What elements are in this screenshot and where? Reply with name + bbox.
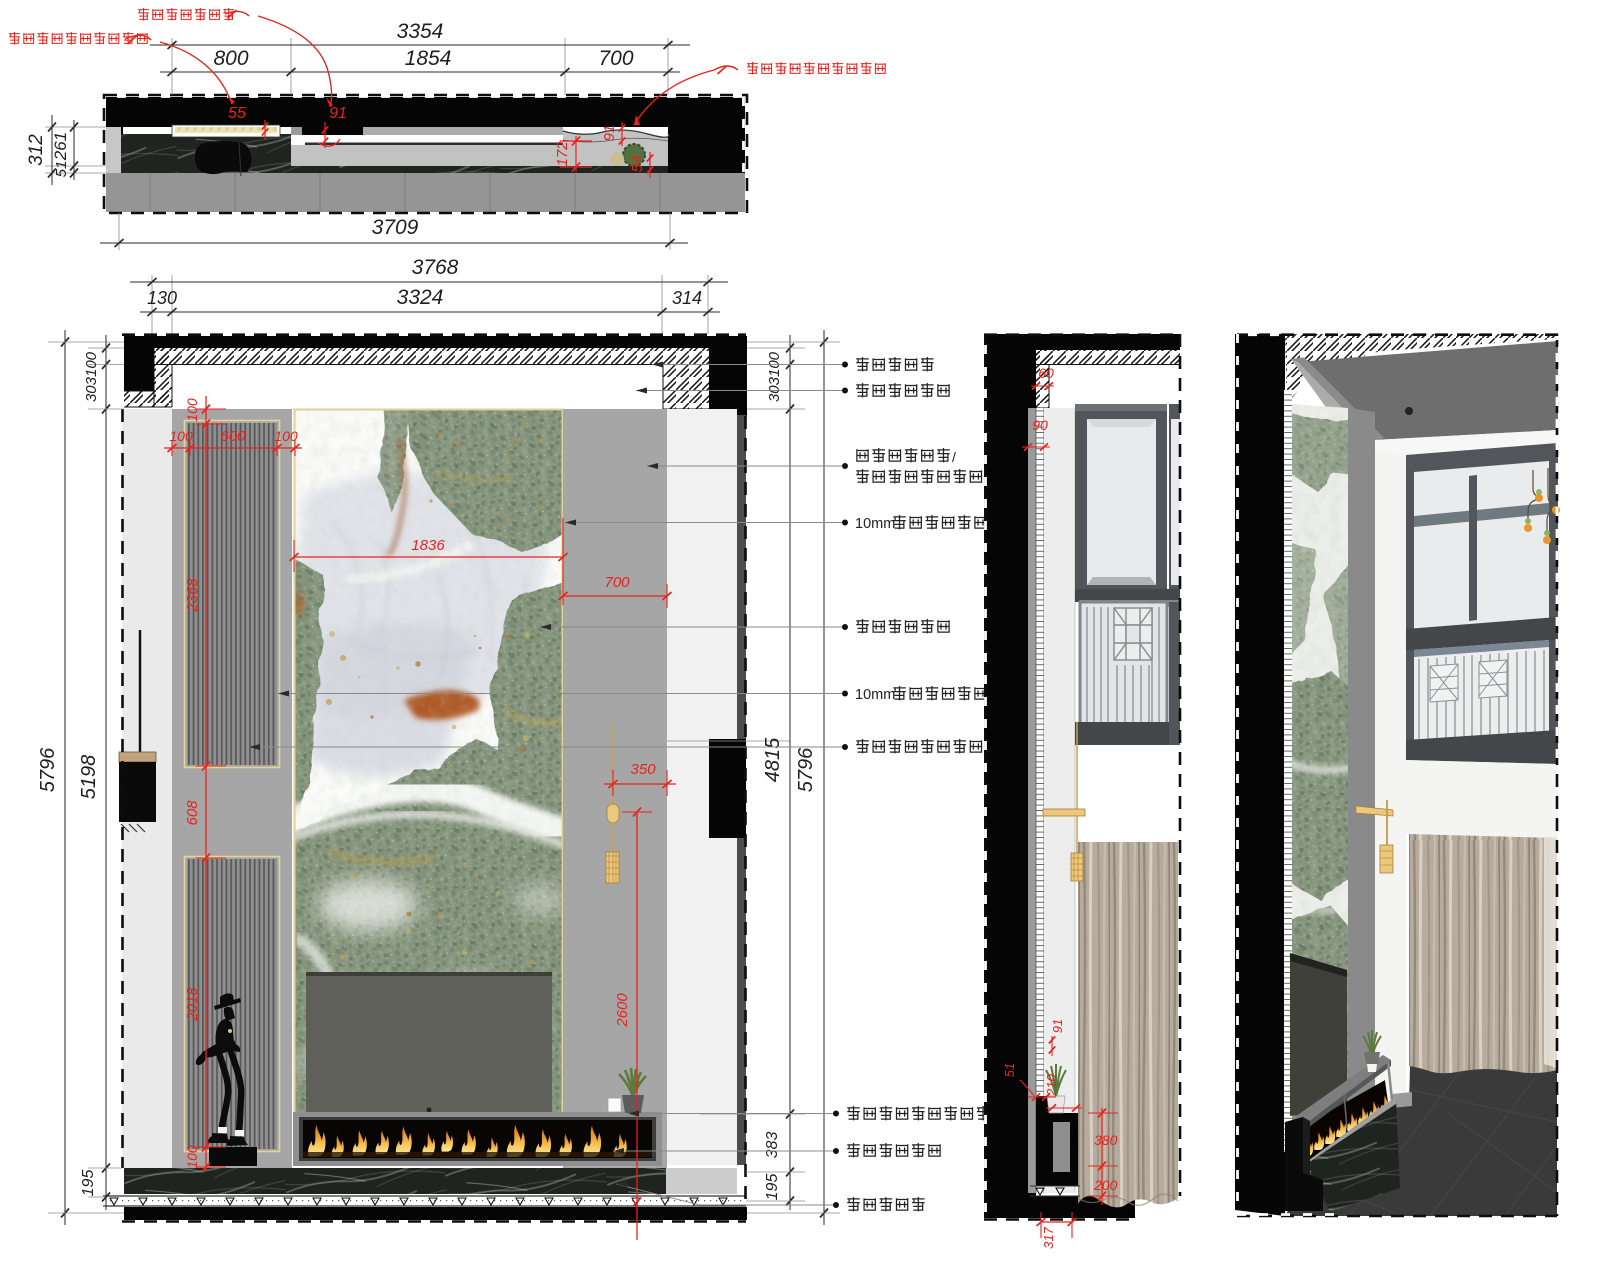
svg-text:5796: 5796 <box>37 747 59 792</box>
svg-text:10mm: 10mm <box>855 687 895 703</box>
svg-text:51: 51 <box>53 161 70 178</box>
svg-text:2018: 2018 <box>184 987 201 1022</box>
svg-text:383: 383 <box>764 1132 781 1159</box>
svg-text:608: 608 <box>184 800 201 826</box>
svg-text:3324: 3324 <box>397 286 444 309</box>
svg-text:172: 172 <box>554 141 571 167</box>
svg-text:2600: 2600 <box>614 993 631 1028</box>
svg-text:350: 350 <box>630 761 656 778</box>
svg-text:1836: 1836 <box>411 537 445 554</box>
svg-text:100: 100 <box>184 398 200 422</box>
svg-text:261: 261 <box>51 132 70 161</box>
svg-text:5198: 5198 <box>78 755 100 800</box>
svg-text:303100: 303100 <box>766 351 783 402</box>
svg-text:700: 700 <box>604 574 630 591</box>
svg-text:800: 800 <box>213 47 248 70</box>
svg-text:312: 312 <box>26 134 47 166</box>
svg-text:2368: 2368 <box>184 578 201 613</box>
svg-text:1854: 1854 <box>405 47 452 70</box>
svg-text:700: 700 <box>598 47 633 70</box>
svg-text:600: 600 <box>220 428 246 445</box>
svg-text:195: 195 <box>764 1174 781 1201</box>
svg-text:314: 314 <box>672 288 702 308</box>
svg-text:91: 91 <box>329 105 347 122</box>
svg-text:51: 51 <box>1002 1063 1017 1077</box>
svg-text:3709: 3709 <box>372 216 419 239</box>
svg-text:100: 100 <box>169 428 193 444</box>
svg-text:195: 195 <box>80 1170 97 1197</box>
svg-text:90: 90 <box>1032 417 1048 433</box>
svg-text:303100: 303100 <box>83 351 100 402</box>
svg-text:54: 54 <box>629 156 646 173</box>
svg-text:91: 91 <box>1050 1019 1065 1033</box>
svg-text:317: 317 <box>1041 1226 1056 1248</box>
svg-text:130: 130 <box>147 288 177 308</box>
svg-text:60: 60 <box>1038 365 1054 381</box>
svg-text:55: 55 <box>228 105 246 122</box>
svg-text:210: 210 <box>1044 1073 1059 1096</box>
svg-text:4815: 4815 <box>762 737 784 782</box>
svg-text:5796: 5796 <box>795 747 817 792</box>
svg-text:91: 91 <box>601 125 618 142</box>
svg-text:380: 380 <box>1094 1132 1118 1148</box>
svg-text:3354: 3354 <box>397 20 444 43</box>
svg-text:10mm: 10mm <box>855 516 895 532</box>
svg-text:100: 100 <box>184 1145 200 1169</box>
svg-text:100: 100 <box>274 428 298 444</box>
svg-text:/: / <box>952 449 956 465</box>
svg-text:3768: 3768 <box>412 256 459 279</box>
svg-text:200: 200 <box>1093 1177 1118 1193</box>
